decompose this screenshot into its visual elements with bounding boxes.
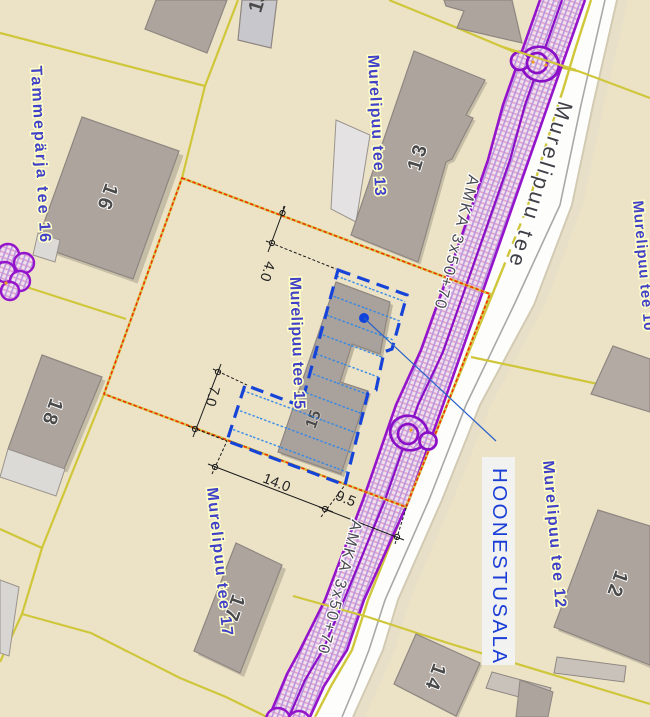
svg-text:HOONESTUSALA: HOONESTUSALA	[488, 468, 511, 665]
